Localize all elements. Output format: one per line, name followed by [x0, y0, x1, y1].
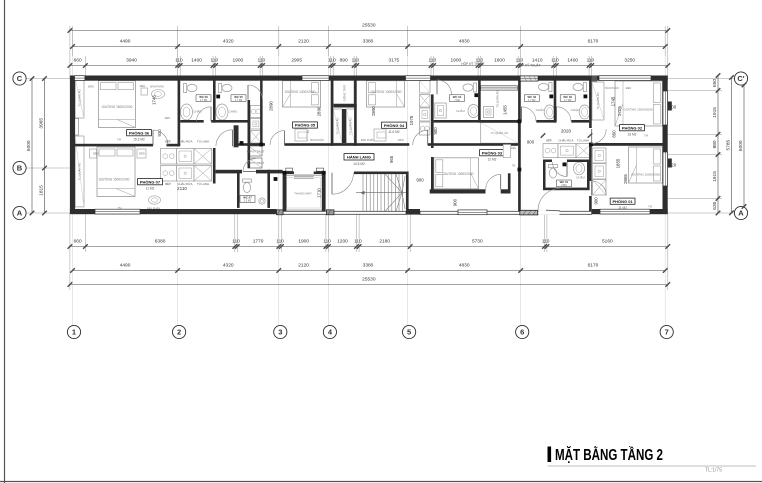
svg-text:C': C' — [737, 74, 744, 83]
svg-text:6170: 6170 — [588, 39, 599, 45]
svg-text:1.7 M2: 1.7 M2 — [564, 99, 572, 102]
svg-text:5730: 5730 — [472, 239, 483, 245]
svg-text:5: 5 — [407, 328, 411, 337]
svg-text:1915: 1915 — [712, 107, 718, 118]
svg-text:TỦ QUẦN ÁO: TỦ QUẦN ÁO — [335, 117, 340, 135]
svg-text:4320: 4320 — [223, 263, 234, 269]
svg-text:1400: 1400 — [567, 58, 578, 64]
svg-text:900: 900 — [594, 197, 599, 205]
svg-text:3250: 3250 — [624, 58, 635, 64]
svg-text:11.6 M2: 11.6 M2 — [388, 130, 400, 134]
svg-text:1200: 1200 — [337, 239, 348, 245]
svg-text:PHÒNG 03: PHÒNG 03 — [482, 150, 503, 155]
svg-text:965: 965 — [389, 155, 394, 163]
svg-text:TM: TM — [512, 165, 515, 168]
svg-text:HỘP KỸ THUẬT: HỘP KỸ THUẬT — [517, 63, 540, 68]
svg-text:4830: 4830 — [459, 263, 470, 269]
svg-text:TỦ LẠNH: TỦ LẠNH — [197, 138, 209, 143]
svg-text:2180: 2180 — [379, 239, 390, 245]
svg-text:110: 110 — [587, 58, 595, 64]
svg-text:1900: 1900 — [298, 239, 309, 245]
svg-text:3380: 3380 — [363, 263, 374, 269]
svg-text:635: 635 — [712, 201, 718, 209]
svg-text:C: C — [17, 74, 23, 83]
svg-text:BẾP: BẾP — [165, 138, 171, 143]
svg-text:1915: 1915 — [712, 171, 718, 182]
svg-text:HÀNH LANG: HÀNH LANG — [347, 154, 371, 159]
svg-text:900: 900 — [453, 198, 458, 206]
svg-text:TM: TM — [648, 205, 652, 209]
svg-text:HỘP KỸ THUẬT: HỘP KỸ THUẬT — [247, 151, 265, 154]
svg-text:660: 660 — [74, 58, 82, 64]
svg-text:660: 660 — [74, 239, 82, 245]
svg-text:2890: 2890 — [317, 106, 322, 116]
svg-text:3380: 3380 — [363, 39, 374, 45]
svg-text:6000: 6000 — [738, 140, 744, 151]
svg-text:110: 110 — [210, 58, 218, 64]
svg-text:3965: 3965 — [38, 118, 44, 129]
svg-text:TỦ QUẦN ÁO: TỦ QUẦN ÁO — [495, 89, 500, 107]
svg-text:1900: 1900 — [233, 58, 244, 64]
svg-text:110: 110 — [258, 58, 266, 64]
svg-text:GIƯỜNG 1500X2000: GIƯỜNG 1500X2000 — [624, 107, 653, 112]
svg-text:MẶT BẰNG TẦNG 2: MẶT BẰNG TẦNG 2 — [555, 446, 663, 464]
svg-text:110: 110 — [323, 239, 331, 245]
svg-text:15.3 M2: 15.3 M2 — [133, 138, 145, 142]
svg-text:PHÒNG 02: PHÒNG 02 — [622, 125, 643, 130]
svg-text:1.7 M2: 1.7 M2 — [528, 99, 536, 102]
svg-text:A: A — [17, 209, 23, 218]
svg-text:BẾP: BẾP — [165, 181, 171, 186]
svg-text:GIƯỜNG 1300X2000: GIƯỜNG 1300X2000 — [285, 89, 316, 94]
svg-text:6170: 6170 — [588, 263, 599, 269]
svg-text:4490: 4490 — [120, 39, 131, 45]
svg-text:GIƯỜNG 1300X2000: GIƯỜNG 1300X2000 — [443, 171, 474, 176]
svg-text:25530: 25530 — [362, 277, 376, 283]
svg-text:200: 200 — [669, 105, 677, 110]
svg-text:110: 110 — [428, 58, 436, 64]
svg-text:6380: 6380 — [155, 239, 166, 245]
svg-text:GIƯỜNG 1500X2000: GIƯỜNG 1500X2000 — [631, 172, 660, 177]
svg-text:PHÒNG 06: PHÒNG 06 — [129, 130, 150, 135]
svg-text:16 M2: 16 M2 — [628, 133, 637, 137]
svg-text:220: 220 — [669, 163, 677, 168]
svg-text:GIƯỜNG 1500X2000: GIƯỜNG 1500X2000 — [102, 104, 133, 109]
svg-text:CHẬU RỬA: CHẬU RỬA — [559, 137, 574, 142]
svg-text:1855: 1855 — [616, 158, 621, 168]
svg-text:PHÒNG 07: PHÒNG 07 — [140, 179, 161, 184]
svg-text:A: A — [738, 209, 744, 218]
svg-text:1815: 1815 — [38, 185, 44, 196]
svg-text:110: 110 — [542, 239, 550, 245]
svg-text:TM: TM — [117, 138, 121, 142]
svg-text:110: 110 — [175, 58, 183, 64]
svg-text:2890: 2890 — [371, 106, 376, 116]
svg-text:2865: 2865 — [623, 174, 628, 184]
svg-text:1455: 1455 — [503, 105, 508, 115]
svg-text:7 M2: 7 M2 — [454, 99, 460, 102]
svg-text:3: 3 — [278, 328, 282, 337]
svg-text:7: 7 — [665, 328, 669, 337]
svg-text:CHẬU: CHẬU — [576, 175, 585, 180]
svg-text:5785: 5785 — [725, 139, 731, 150]
svg-text:4830: 4830 — [459, 39, 470, 45]
svg-text:110: 110 — [232, 239, 240, 245]
svg-text:3.3 M2: 3.3 M2 — [244, 200, 252, 203]
svg-text:2: 2 — [177, 328, 181, 337]
svg-text:650: 650 — [712, 79, 718, 87]
svg-text:CHẬU: CHẬU — [571, 107, 580, 112]
svg-text:TM: TM — [118, 206, 122, 210]
svg-text:2120: 2120 — [298, 263, 309, 269]
svg-text:TỦ QUẦN ÁO: TỦ QUẦN ÁO — [77, 89, 82, 107]
svg-text:11 M2: 11 M2 — [618, 206, 627, 210]
svg-text:CHẬU RỬA: CHẬU RỬA — [178, 138, 193, 143]
svg-text:CHẬU: CHẬU — [456, 108, 465, 113]
svg-text:110: 110 — [354, 239, 362, 245]
svg-text:2110: 2110 — [177, 186, 187, 191]
svg-text:900: 900 — [433, 127, 438, 135]
svg-text:880: 880 — [712, 140, 718, 148]
svg-text:2705: 2705 — [617, 106, 622, 116]
svg-text:1: 1 — [72, 328, 76, 337]
svg-text:1745: 1745 — [152, 95, 157, 105]
svg-text:GIƯỜNG 1500X2000: GIƯỜNG 1500X2000 — [99, 177, 130, 182]
svg-text:TỦ LẠNH: TỦ LẠNH — [577, 137, 589, 142]
svg-text:TỦ QUẦN ÁO: TỦ QUẦN ÁO — [348, 117, 353, 135]
svg-text:GIẾNG TRỜI: GIẾNG TRỜI — [342, 84, 347, 101]
svg-text:CHẬU: CHẬU — [536, 107, 545, 112]
svg-text:TỦ LẠNH: TỦ LẠNH — [197, 181, 209, 186]
svg-text:1900: 1900 — [451, 58, 462, 64]
svg-text:25530: 25530 — [362, 23, 376, 29]
svg-text:900: 900 — [416, 178, 424, 183]
svg-text:2890: 2890 — [269, 101, 274, 111]
svg-text:4320: 4320 — [223, 39, 234, 45]
svg-text:12 M2: 12 M2 — [488, 158, 497, 162]
svg-text:1400: 1400 — [191, 58, 202, 64]
svg-text:2905: 2905 — [291, 58, 302, 64]
svg-text:3940: 3940 — [126, 58, 137, 64]
svg-text:1.7 M2: 1.7 M2 — [235, 99, 243, 102]
svg-text:850: 850 — [612, 130, 617, 138]
svg-text:PHÒNG 04: PHÒNG 04 — [384, 123, 405, 128]
svg-text:4490: 4490 — [120, 263, 131, 269]
svg-text:1710: 1710 — [316, 188, 321, 198]
svg-text:GIƯỜNG 1300X2000: GIƯỜNG 1300X2000 — [371, 89, 402, 94]
svg-text:1770: 1770 — [253, 239, 264, 245]
svg-text:2120: 2120 — [298, 39, 309, 45]
svg-text:6: 6 — [520, 328, 524, 337]
svg-text:1745: 1745 — [611, 96, 616, 106]
svg-text:2 M2: 2 M2 — [561, 184, 567, 187]
svg-text:14.5 M2: 14.5 M2 — [353, 162, 365, 166]
svg-text:B: B — [17, 164, 23, 173]
svg-text:1975: 1975 — [409, 115, 414, 125]
svg-text:110: 110 — [352, 58, 360, 64]
svg-text:HỘP KỸ THUẬT: HỘP KỸ THUẬT — [247, 162, 265, 165]
svg-text:890: 890 — [340, 58, 348, 64]
svg-text:BẾP: BẾP — [546, 137, 552, 142]
svg-text:TỦ QUẦN ÁO: TỦ QUẦN ÁO — [77, 162, 82, 180]
svg-text:110: 110 — [328, 58, 336, 64]
svg-text:2020: 2020 — [561, 129, 572, 134]
svg-text:TỦ QUẦN ÁO: TỦ QUẦN ÁO — [491, 130, 509, 135]
svg-text:PHÒNG 05: PHÒNG 05 — [295, 123, 316, 128]
svg-text:110: 110 — [551, 58, 559, 64]
svg-text:PHÒNG 01: PHÒNG 01 — [612, 199, 633, 204]
svg-text:1600: 1600 — [494, 58, 505, 64]
svg-text:TM: TM — [644, 134, 648, 138]
svg-text:1.7 M2: 1.7 M2 — [200, 99, 208, 102]
svg-text:ĐÈN: ĐÈN — [511, 147, 516, 150]
svg-text:6000: 6000 — [26, 140, 32, 151]
svg-text:HỘP KỸ THUẬT: HỘP KỸ THUẬT — [461, 61, 484, 66]
svg-text:THANG MÁY: THANG MÁY — [294, 192, 312, 196]
svg-text:3175: 3175 — [389, 58, 400, 64]
svg-text:CHẬU: CHẬU — [229, 109, 238, 114]
svg-text:TL:1/75: TL:1/75 — [705, 468, 722, 474]
svg-text:11 M2: 11 M2 — [146, 187, 155, 191]
svg-text:110: 110 — [276, 239, 284, 245]
svg-text:TỦ QUẦN ÁO: TỦ QUẦN ÁO — [595, 91, 600, 109]
svg-text:900: 900 — [527, 140, 535, 145]
svg-text:5160: 5160 — [602, 239, 613, 245]
